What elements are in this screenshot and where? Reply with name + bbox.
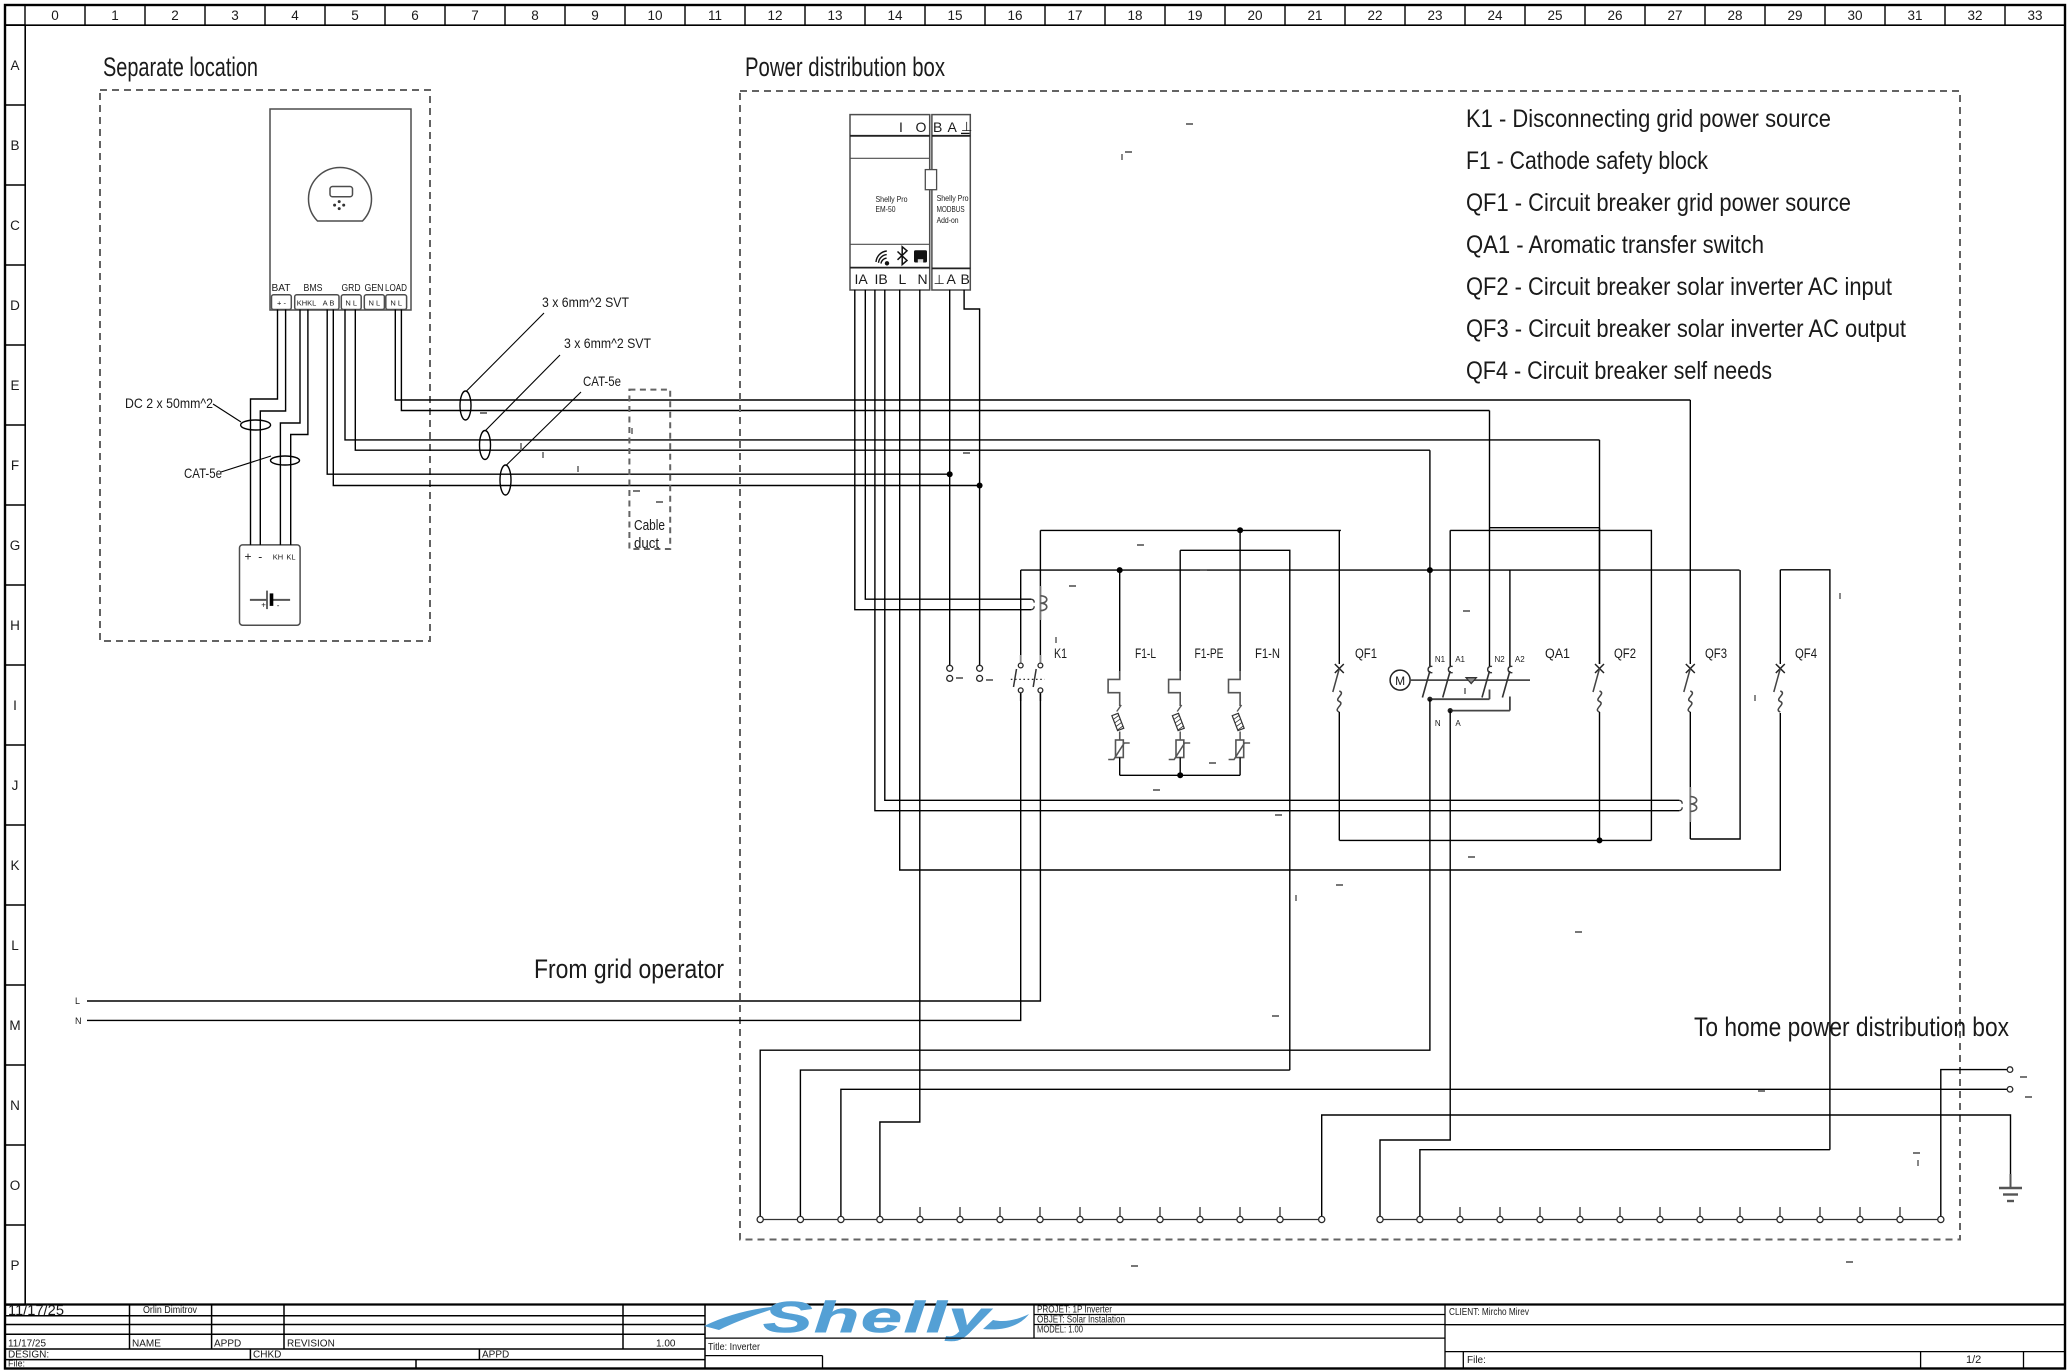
svg-text:QF4 - Circuit breaker self nee: QF4 - Circuit breaker self needs	[1466, 357, 1772, 385]
svg-text:+: +	[244, 550, 251, 564]
svg-text:⊥: ⊥	[961, 119, 972, 134]
svg-text:BMS: BMS	[304, 282, 323, 294]
svg-text:N: N	[1435, 719, 1441, 728]
svg-text:E: E	[10, 378, 19, 393]
svg-text:F1 - Cathode safety block: F1 - Cathode safety block	[1466, 147, 1708, 175]
svg-text:KH: KH	[273, 553, 283, 562]
svg-text:8: 8	[531, 8, 539, 23]
svg-text:N L: N L	[345, 299, 357, 308]
svg-text:L: L	[75, 996, 80, 1006]
svg-text:G: G	[10, 538, 21, 553]
svg-text:18: 18	[1127, 8, 1142, 23]
svg-text:2: 2	[171, 8, 179, 23]
svg-text:A B: A B	[323, 299, 335, 308]
svg-text:QF3: QF3	[1705, 646, 1727, 661]
svg-text:NAME: NAME	[132, 1339, 161, 1350]
svg-text:⊥: ⊥	[934, 272, 945, 287]
svg-text:0: 0	[51, 8, 59, 23]
svg-text:H: H	[10, 618, 20, 633]
svg-text:File:: File:	[8, 1358, 25, 1368]
svg-text:P: P	[10, 1258, 19, 1273]
svg-text:28: 28	[1727, 8, 1742, 23]
svg-text:K1: K1	[1054, 646, 1067, 661]
svg-text:Title: Inverter: Title: Inverter	[708, 1342, 761, 1353]
svg-text:QF1: QF1	[1355, 646, 1377, 661]
svg-text:File:: File:	[1467, 1355, 1486, 1366]
svg-text:To home power distribution box: To home power distribution box	[1694, 1012, 2009, 1042]
svg-text:11/17/25: 11/17/25	[8, 1339, 46, 1350]
svg-text:A2: A2	[1515, 655, 1525, 664]
svg-text:F1-PE: F1-PE	[1195, 646, 1224, 661]
svg-text:12: 12	[767, 8, 782, 23]
svg-text:20: 20	[1247, 8, 1262, 23]
svg-text:F: F	[11, 458, 19, 473]
svg-text:I: I	[13, 698, 17, 713]
svg-text:32: 32	[1967, 8, 1982, 23]
svg-text:QA1 - Aromatic transfer switch: QA1 - Aromatic transfer switch	[1466, 231, 1764, 259]
svg-text:QF4: QF4	[1795, 646, 1817, 661]
svg-text:Shelly Pro: Shelly Pro	[876, 194, 908, 204]
svg-text:N2: N2	[1495, 655, 1506, 664]
svg-text:QF2 - Circuit breaker solar in: QF2 - Circuit breaker solar inverter AC …	[1466, 273, 1892, 301]
svg-text:A: A	[947, 271, 957, 287]
svg-text:26: 26	[1607, 8, 1622, 23]
svg-text:N L: N L	[390, 299, 402, 308]
svg-text:B: B	[961, 271, 970, 287]
svg-text:CAT-5e: CAT-5e	[184, 465, 222, 481]
svg-text:1: 1	[111, 8, 119, 23]
svg-text:C: C	[10, 218, 20, 233]
svg-text:21: 21	[1307, 8, 1322, 23]
svg-text:Power distribution box: Power distribution box	[745, 52, 945, 82]
svg-text:CHKD: CHKD	[253, 1350, 281, 1361]
svg-text:3 x 6mm^2 SVT: 3 x 6mm^2 SVT	[542, 294, 629, 310]
svg-text:B: B	[10, 138, 19, 153]
svg-text:17: 17	[1067, 8, 1082, 23]
svg-text:CLIENT: Mircho Mirev: CLIENT: Mircho Mirev	[1449, 1307, 1529, 1318]
svg-text:15: 15	[947, 8, 962, 23]
svg-text:EM-50: EM-50	[876, 204, 896, 214]
svg-text:7: 7	[471, 8, 479, 23]
svg-text:O: O	[10, 1178, 21, 1193]
svg-text:B: B	[933, 119, 942, 135]
svg-text:Orlin Dimitrov: Orlin Dimitrov	[143, 1305, 197, 1316]
svg-text:From grid operator: From grid operator	[534, 954, 724, 984]
svg-text:Shelly Pro: Shelly Pro	[937, 193, 969, 203]
svg-text:Add-on: Add-on	[937, 215, 959, 225]
svg-text:O: O	[916, 119, 927, 135]
svg-text:+: +	[261, 601, 266, 610]
svg-text:27: 27	[1667, 8, 1682, 23]
svg-text:11: 11	[708, 8, 722, 23]
svg-text:N: N	[10, 1098, 20, 1113]
svg-text:M: M	[9, 1018, 20, 1033]
svg-text:K1 - Disconnecting grid power: K1 - Disconnecting grid power source	[1466, 105, 1831, 133]
svg-text:6: 6	[411, 8, 419, 23]
svg-text:19: 19	[1187, 8, 1202, 23]
svg-text:16: 16	[1007, 8, 1022, 23]
svg-text:30: 30	[1847, 8, 1862, 23]
svg-text:3 x 6mm^2 SVT: 3 x 6mm^2 SVT	[564, 335, 651, 351]
svg-text:33: 33	[2027, 8, 2042, 23]
svg-text:L: L	[11, 938, 19, 953]
svg-text:GEN: GEN	[365, 282, 384, 294]
svg-text:5: 5	[351, 8, 359, 23]
svg-text:L: L	[899, 271, 907, 287]
svg-text:31: 31	[1907, 8, 1922, 23]
svg-text:CAT-5e: CAT-5e	[583, 373, 621, 389]
svg-text:-: -	[277, 601, 280, 610]
svg-text:3: 3	[231, 8, 239, 23]
svg-text:I: I	[899, 119, 903, 135]
svg-text:F1-L: F1-L	[1135, 646, 1156, 661]
svg-text:J: J	[12, 778, 19, 793]
svg-text:A1: A1	[1455, 655, 1465, 664]
svg-text:duct: duct	[634, 536, 659, 552]
svg-text:-: -	[258, 550, 262, 564]
svg-text:GRD: GRD	[342, 282, 361, 294]
svg-text:MODEL: 1.00: MODEL: 1.00	[1037, 1325, 1083, 1336]
svg-text:10: 10	[647, 8, 662, 23]
svg-text:K: K	[10, 858, 19, 873]
svg-text:11/17/25: 11/17/25	[8, 1303, 64, 1319]
svg-text:QF2: QF2	[1614, 646, 1636, 661]
svg-text:F1-N: F1-N	[1255, 646, 1280, 661]
svg-text:QF3 - Circuit breaker solar in: QF3 - Circuit breaker solar inverter AC …	[1466, 315, 1906, 343]
svg-text:N L: N L	[368, 299, 380, 308]
svg-text:DC 2 x 50mm^2: DC 2 x 50mm^2	[125, 395, 213, 411]
svg-text:23: 23	[1427, 8, 1442, 23]
svg-text:4: 4	[291, 8, 299, 23]
svg-text:24: 24	[1487, 8, 1503, 23]
svg-text:14: 14	[887, 8, 903, 23]
svg-text:APPD: APPD	[482, 1350, 509, 1361]
svg-text:APPD: APPD	[214, 1339, 241, 1350]
svg-text:25: 25	[1547, 8, 1562, 23]
svg-text:IB: IB	[875, 271, 888, 287]
svg-text:KHKL: KHKL	[297, 299, 317, 308]
svg-text:29: 29	[1787, 8, 1802, 23]
svg-text:KL: KL	[286, 553, 295, 562]
svg-text:+ -: + -	[277, 299, 286, 308]
svg-text:A: A	[1455, 719, 1461, 728]
svg-text:A: A	[948, 119, 958, 135]
svg-text:1/2: 1/2	[1966, 1354, 1981, 1366]
svg-text:IA: IA	[855, 271, 869, 287]
svg-text:N: N	[75, 1016, 82, 1026]
svg-text:Shelly: Shelly	[763, 1293, 994, 1342]
svg-text:Separate location: Separate location	[103, 52, 258, 82]
svg-text:Cable: Cable	[634, 518, 665, 534]
svg-text:9: 9	[591, 8, 599, 23]
svg-text:A: A	[10, 58, 19, 73]
svg-text:13: 13	[827, 8, 842, 23]
svg-text:N1: N1	[1435, 655, 1446, 664]
svg-text:BAT: BAT	[272, 282, 292, 294]
svg-text:1.00: 1.00	[656, 1339, 676, 1350]
svg-text:22: 22	[1367, 8, 1382, 23]
svg-text:LOAD: LOAD	[385, 282, 407, 294]
svg-text:QA1: QA1	[1545, 646, 1570, 661]
svg-text:M: M	[1395, 674, 1405, 688]
svg-text:REVISION: REVISION	[287, 1339, 335, 1350]
svg-text:N: N	[918, 271, 928, 287]
svg-text:QF1 - Circuit breaker grid pow: QF1 - Circuit breaker grid power source	[1466, 189, 1851, 217]
svg-text:D: D	[10, 298, 20, 313]
svg-text:MODBUS: MODBUS	[937, 204, 965, 214]
